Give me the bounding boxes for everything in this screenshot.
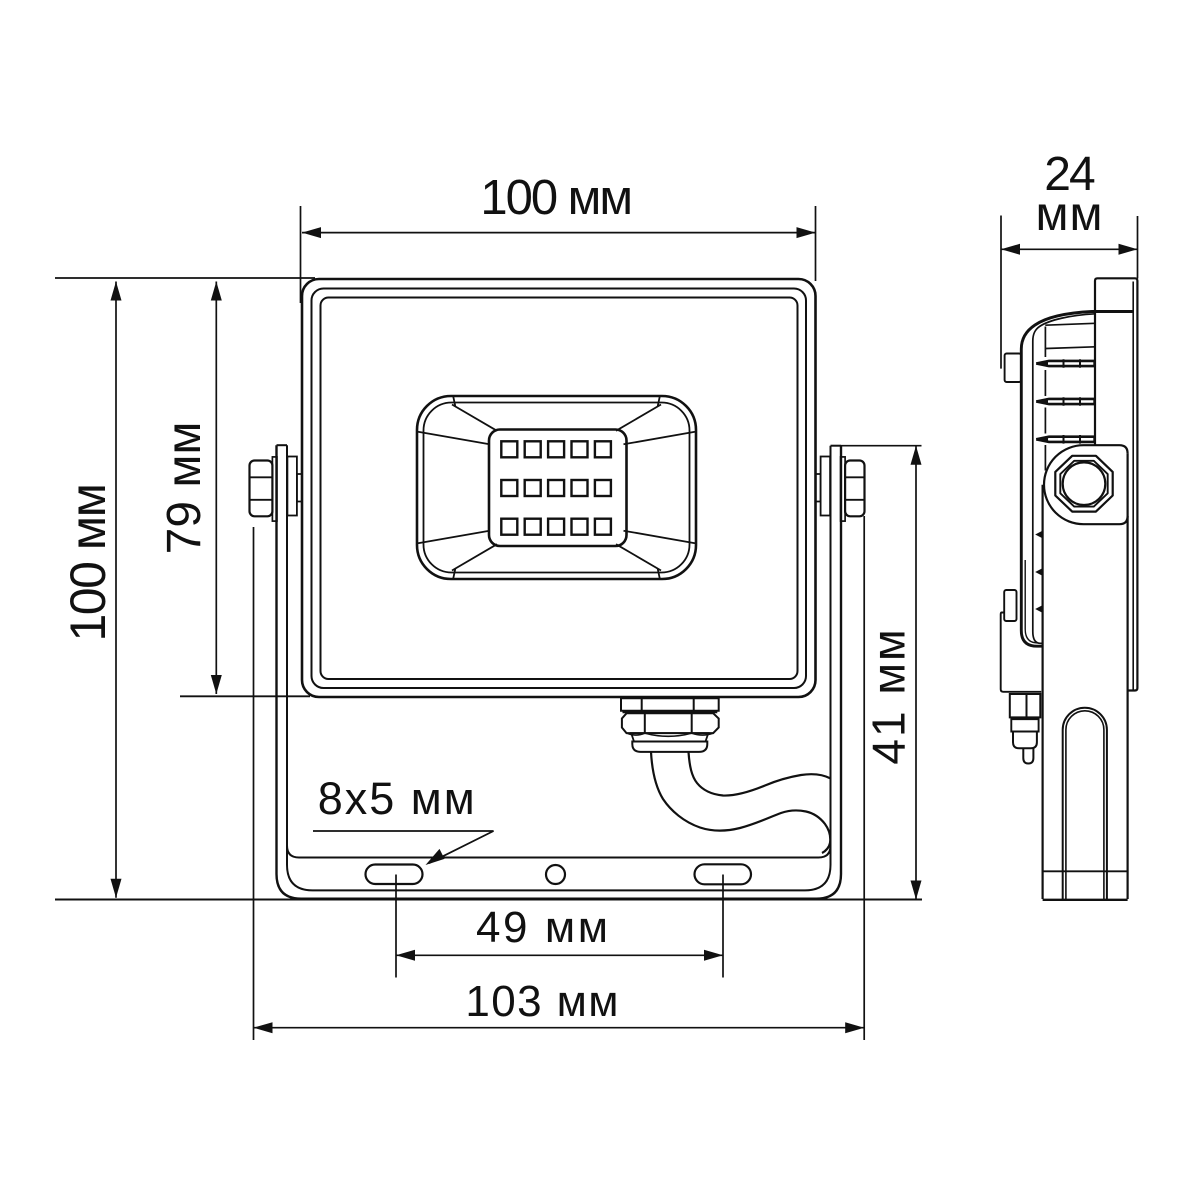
svg-text:100 мм: 100 мм	[60, 484, 116, 641]
svg-text:8x5 мм: 8x5 мм	[318, 773, 477, 824]
svg-text:100 мм: 100 мм	[480, 171, 631, 225]
svg-text:49 мм: 49 мм	[476, 903, 611, 952]
svg-text:мм: мм	[1036, 188, 1104, 241]
svg-text:103 мм: 103 мм	[465, 977, 620, 1026]
svg-text:79 мм: 79 мм	[158, 422, 211, 555]
svg-text:41 мм: 41 мм	[863, 627, 915, 764]
